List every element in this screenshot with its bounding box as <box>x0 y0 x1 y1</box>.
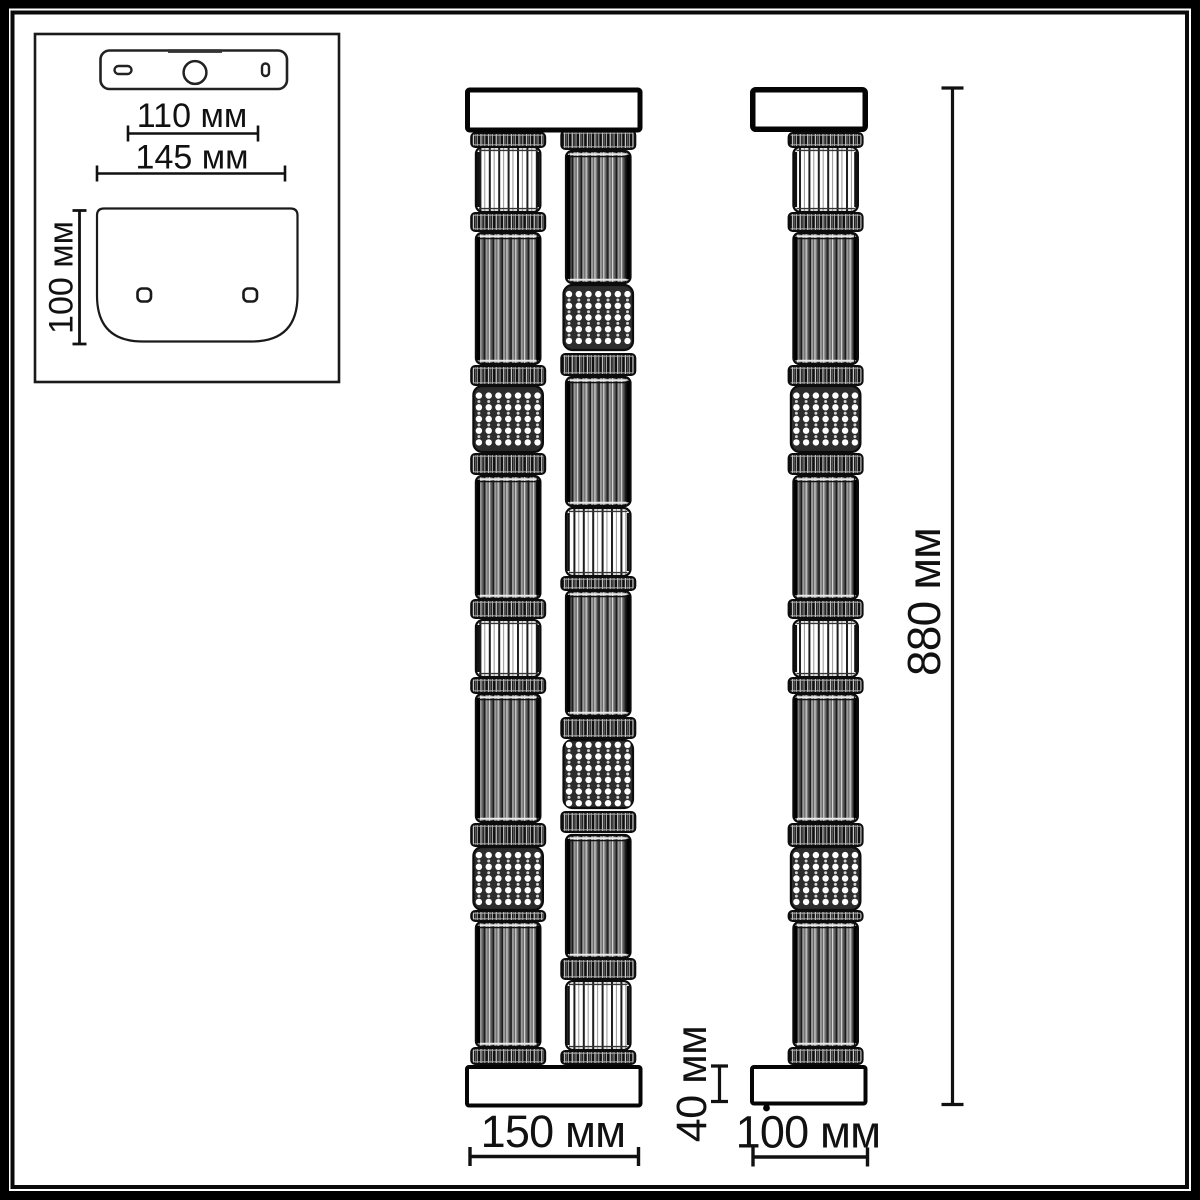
svg-text:110 мм: 110 мм <box>137 97 247 135</box>
svg-text:150 мм: 150 мм <box>481 1106 626 1157</box>
svg-text:100 мм: 100 мм <box>43 221 81 334</box>
svg-text:100 мм: 100 мм <box>736 1107 881 1158</box>
svg-text:880 мм: 880 мм <box>898 528 950 676</box>
svg-text:145 мм: 145 мм <box>136 139 249 177</box>
svg-text:40 мм: 40 мм <box>668 1026 716 1142</box>
